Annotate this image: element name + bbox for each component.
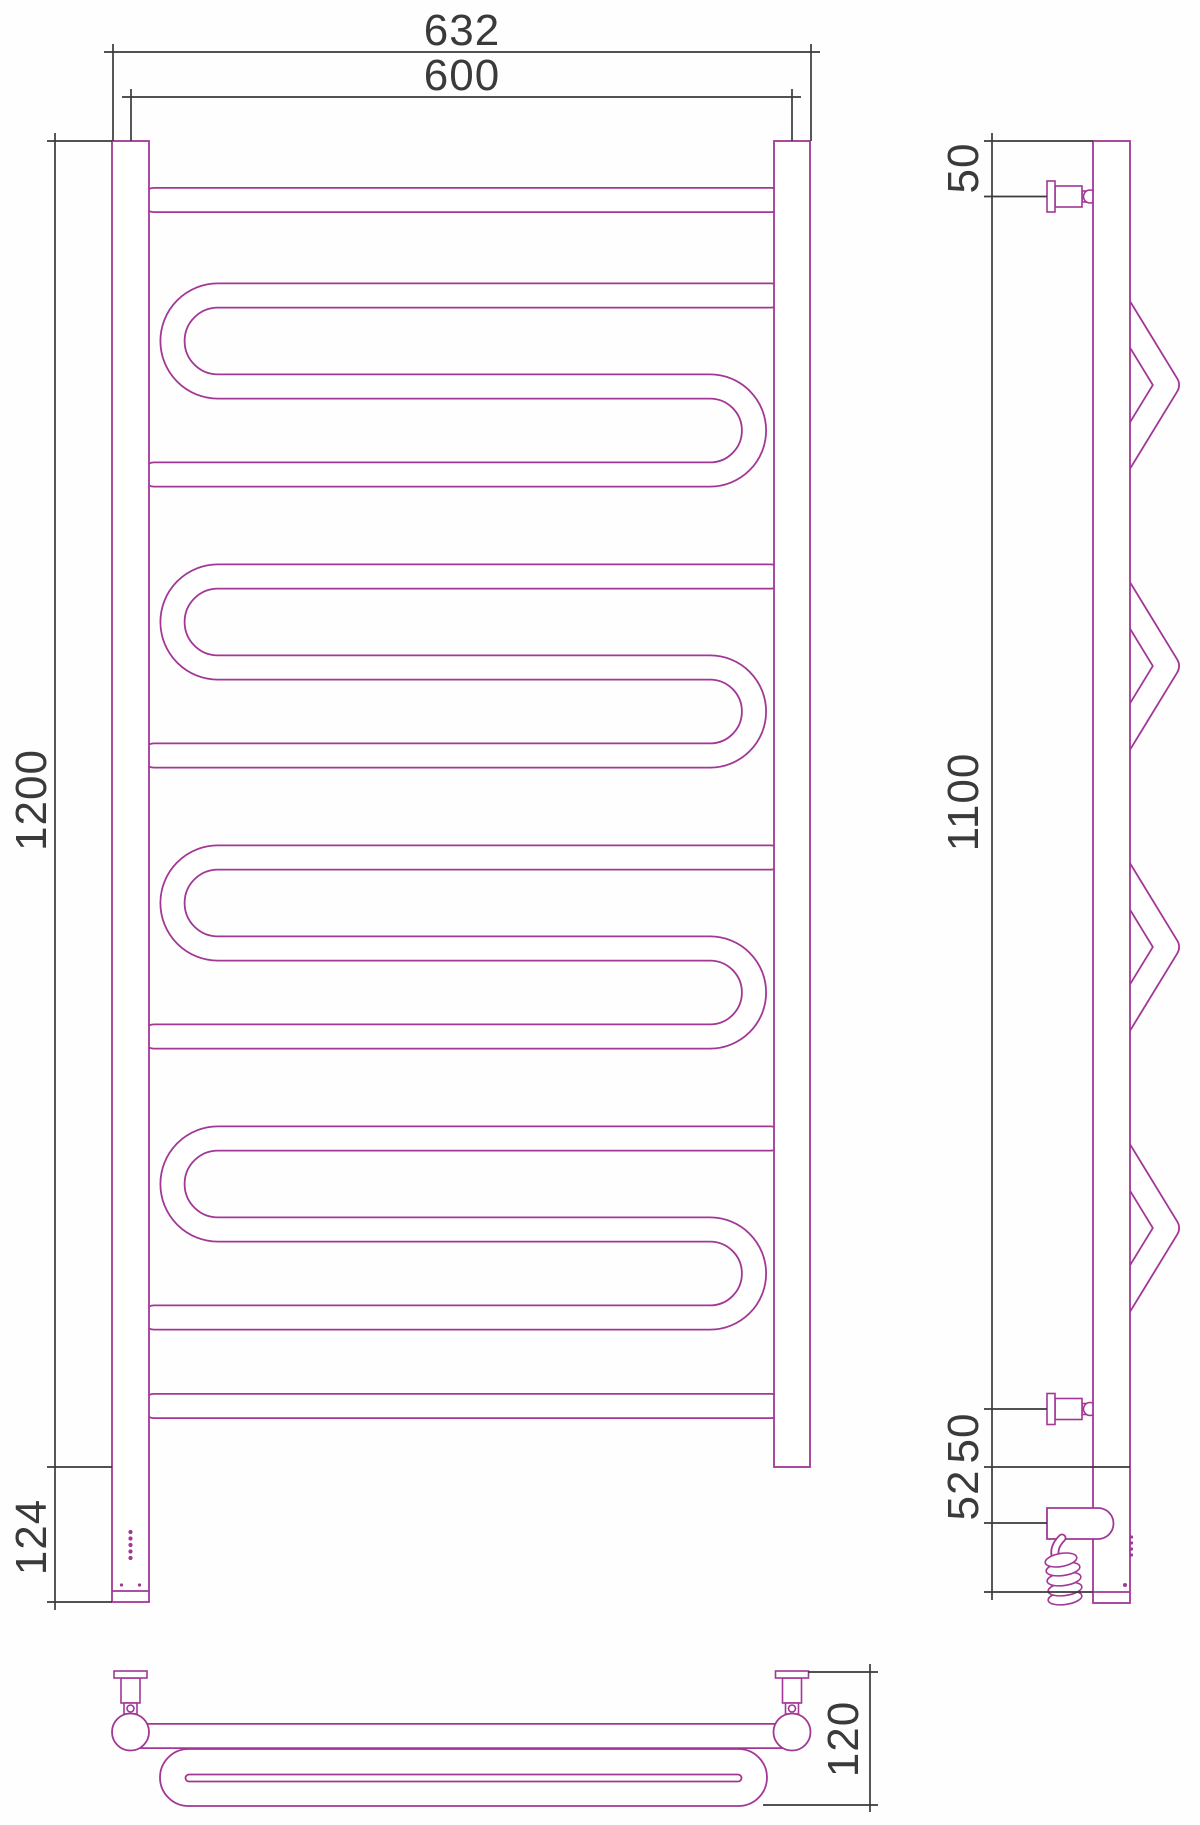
dim-label-600: 600: [424, 51, 500, 100]
dim-label-632: 632: [424, 6, 500, 55]
dim-label-120: 120: [819, 1701, 868, 1777]
dim-label-52: 52: [939, 1470, 988, 1521]
dim-label-50-bottom: 50: [939, 1413, 988, 1464]
side-view: [1044, 141, 1167, 1607]
technical-drawing-page: 632 600 1200 124 50 1100 50 52 120: [0, 0, 1200, 1825]
dim-rail-spacing: 600: [122, 51, 801, 141]
right-riser: [774, 141, 810, 1467]
dim-label-50-top: 50: [939, 143, 988, 194]
top-wall-bracket: [1047, 181, 1097, 212]
towel-rail-drawing: 632 600 1200 124 50 1100 50 52 120: [0, 0, 1200, 1825]
bottom-left-bracket: [112, 1671, 149, 1751]
right-riser-end: [774, 1714, 811, 1751]
dim-height: 1200 124: [7, 133, 112, 1610]
left-riser-end: [112, 1714, 149, 1751]
dim-label-1200: 1200: [7, 749, 56, 851]
electric-box: [1047, 1508, 1114, 1539]
bottom-wall-bracket: [1047, 1394, 1097, 1425]
front-view: [112, 141, 810, 1602]
dim-label-1100: 1100: [939, 753, 988, 852]
coiled-power-cord: [1044, 1538, 1083, 1607]
dim-label-124: 124: [7, 1499, 56, 1575]
side-rail: [1093, 141, 1130, 1603]
bottom-right-bracket: [774, 1671, 811, 1751]
bottom-coil-loop: [160, 1749, 767, 1806]
left-riser: [112, 141, 149, 1602]
serpentine-coil: [154, 200, 771, 1406]
bottom-view: [112, 1671, 811, 1806]
